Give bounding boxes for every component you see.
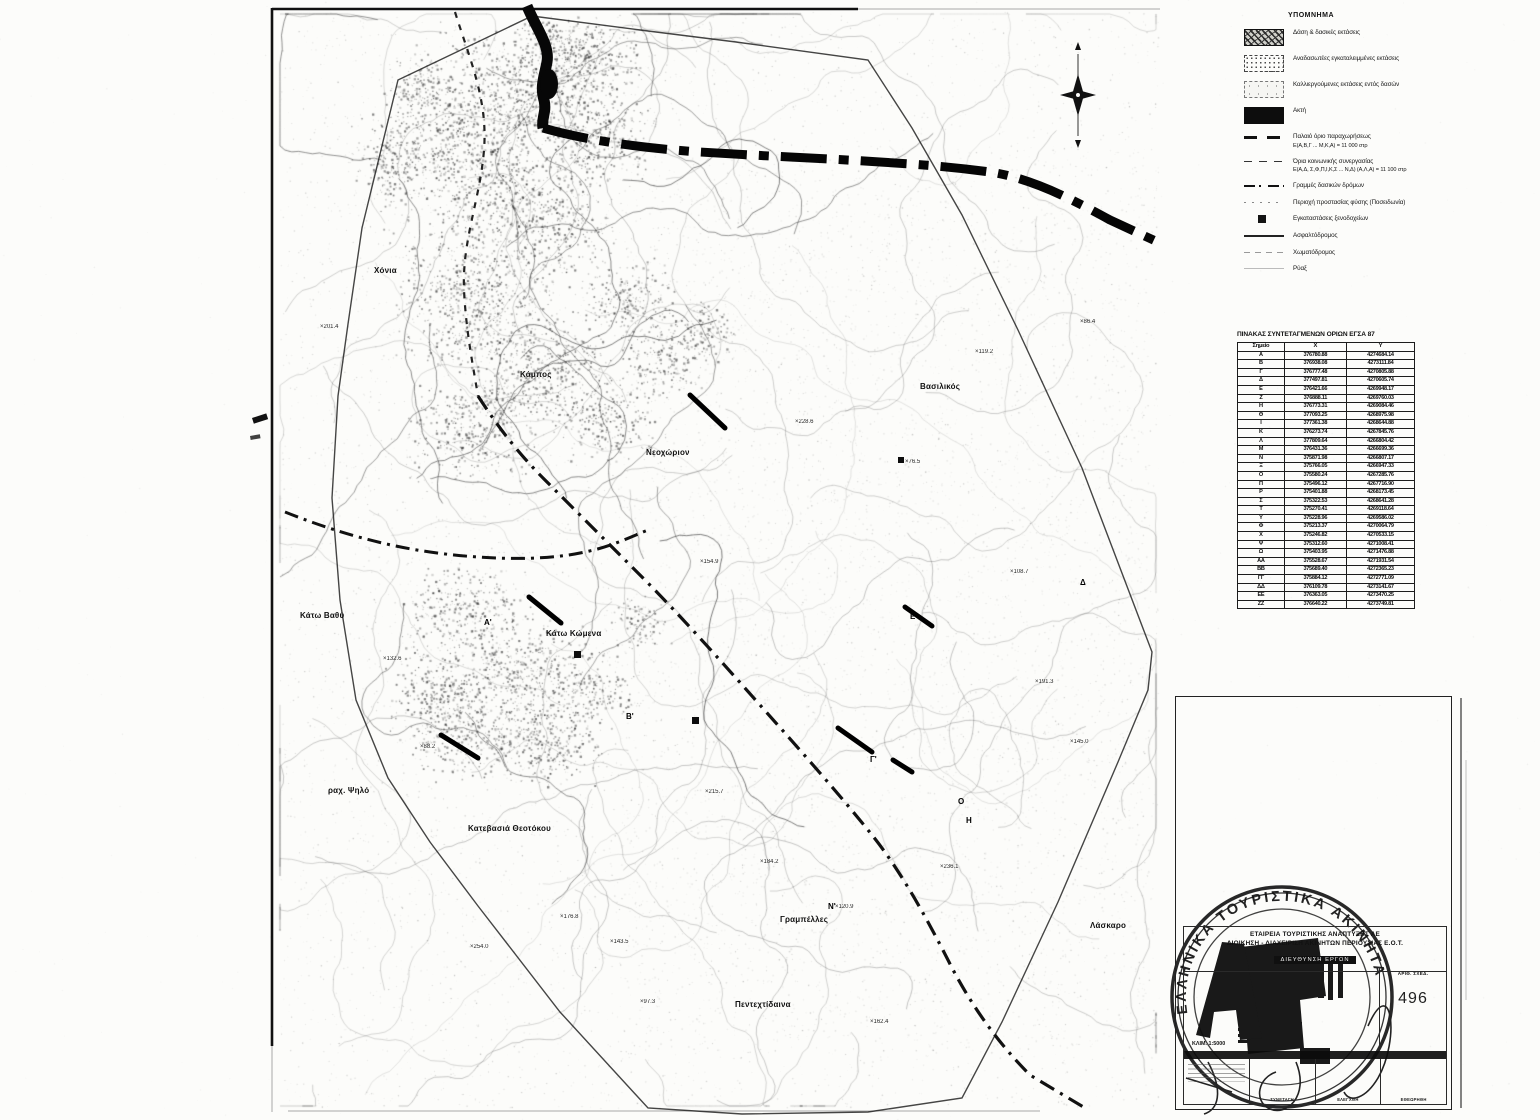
legend-item-sub: Ε(Α,Β,Γ ... Μ,Κ,Α) = 11 000 στρ bbox=[1293, 143, 1371, 149]
legend-item: Δάση & δασικές εκτάσεις bbox=[1244, 29, 1494, 46]
org-line-3: ΔΙΕΥΘΥΝΣΗ ΕΡΓΩΝ bbox=[1274, 956, 1355, 964]
signature-cell-label: ΕΛΕΓΧΘΗ bbox=[1316, 1097, 1381, 1102]
title-block-signature-cell: ΕΘΕΩΡΗΘΗ bbox=[1381, 1059, 1446, 1104]
legend-item: Εγκαταστάσεις ξενοδοχείων bbox=[1244, 215, 1494, 223]
legend-sample-swatch-cultivated bbox=[1244, 81, 1284, 98]
legend-item: Όρια κοινωνικής συνεργασίαςΕ(Α,Δ, Σ,Φ,Π,… bbox=[1244, 158, 1494, 174]
legend-sample-line-stream bbox=[1244, 265, 1284, 269]
legend-sample-swatch-reforest bbox=[1244, 55, 1284, 72]
vertex-letter: Δ bbox=[1080, 578, 1086, 587]
legend-item: Καλλιεργούμενες εκτάσεις εντός δασών bbox=[1244, 81, 1494, 98]
map-label: Βασιλικός bbox=[920, 382, 960, 391]
title-block-middle: ΚΛΙΜ. 1:5000 ΑΡΙΘ. ΣΧΕΔ. 496 bbox=[1184, 967, 1446, 1051]
vertex-letter: Ε' bbox=[910, 612, 917, 621]
legend-item-label: Δάση & δασικές εκτάσεις bbox=[1293, 29, 1360, 37]
table-row: ΓΓ375884.124272771.09 bbox=[1238, 575, 1415, 584]
swatch-coast-icon bbox=[1244, 107, 1284, 124]
legend-item-label: Καλλιεργούμενες εκτάσεις εντός δασών bbox=[1293, 81, 1399, 89]
line-forest-road-icon bbox=[1244, 185, 1284, 187]
legend-sample-swatch-coast bbox=[1244, 107, 1284, 124]
drawing-number-label: ΑΡΙΘ. ΣΧΕΔ. bbox=[1380, 971, 1446, 976]
elevation-mark: ×154.9 bbox=[700, 559, 719, 565]
table-row: Ψ375312.604271008.41 bbox=[1238, 540, 1415, 549]
legend-sample-swatch-forest bbox=[1244, 29, 1284, 46]
table-row: ΒΒ375689.404272365.23 bbox=[1238, 566, 1415, 575]
line-protection-icon bbox=[1244, 202, 1284, 203]
line-stream-icon bbox=[1244, 268, 1284, 269]
elevation-mark: ×97.3 bbox=[640, 999, 655, 1005]
elevation-mark: ×184.2 bbox=[760, 859, 779, 865]
elevation-mark: ×254.0 bbox=[470, 944, 489, 950]
marker-hotel-icon bbox=[1258, 215, 1266, 223]
drawing-number-box: ΑΡΙΘ. ΣΧΕΔ. 496 bbox=[1379, 967, 1446, 1051]
scale-text: ΚΛΙΜ. 1:5000 bbox=[1192, 1041, 1225, 1047]
map-label: Κάτω Κώμενα bbox=[546, 629, 601, 638]
table-row: Μ376431.364266699.36 bbox=[1238, 446, 1415, 455]
legend-item: Γραμμές δασικών δρόμων bbox=[1244, 182, 1494, 190]
legend-sample-line-common-boundary bbox=[1244, 158, 1284, 162]
elevation-mark: ×108.7 bbox=[1010, 569, 1029, 575]
map-label: Γραμπέλλες bbox=[780, 915, 828, 924]
legend-item-label: Περιοχή προστασίας φύσης (Ποσειδωνία) bbox=[1293, 199, 1405, 207]
table-row: Α376780.884274684.14 bbox=[1238, 351, 1415, 360]
legend-panel: ΥΠΟΜΝΗΜΑ Δάση & δασικές εκτάσειςΑναδασωτ… bbox=[1244, 12, 1494, 282]
legend-item-sub: Ε(Α,Δ, Σ,Φ,Π,Ι,Κ,Σ ... Ν,Δ) (Α,Λ,Α) = 11… bbox=[1293, 167, 1406, 173]
title-block-notes-cell bbox=[1184, 1059, 1250, 1104]
legend-item-label: Αναδασωτέες εγκαταλειμμένες εκτάσεις bbox=[1293, 55, 1399, 63]
table-row: Λ377809.644266804.42 bbox=[1238, 437, 1415, 446]
elevation-mark: ×176.8 bbox=[560, 914, 579, 920]
legend-sample-line-forest-road bbox=[1244, 182, 1284, 187]
elevation-mark: ×76.5 bbox=[905, 459, 920, 465]
legend-items: Δάση & δασικές εκτάσειςΑναδασωτέες εγκατ… bbox=[1244, 29, 1494, 273]
table-row: Γ376777.484270805.88 bbox=[1238, 368, 1415, 377]
table-row: Π375496.124267716.90 bbox=[1238, 480, 1415, 489]
table-row: Η376773.314269084.46 bbox=[1238, 403, 1415, 412]
map-annotations: Κάτω ΒαθύΒασιλικόςΝεοχώριονΚατεβασιά Θεο… bbox=[0, 0, 1165, 1120]
legend-item-label: Ρύαξ bbox=[1293, 265, 1307, 273]
vertex-letter: Ο bbox=[958, 797, 964, 806]
legend-item: Ασφαλτόδρομος bbox=[1244, 232, 1494, 240]
map-label: Κάτω Βαθύ bbox=[300, 611, 344, 620]
table-row: Ι377361.384268644.88 bbox=[1238, 420, 1415, 429]
table-row: ΖΖ376640.224273749.81 bbox=[1238, 600, 1415, 609]
swatch-forest-icon bbox=[1244, 29, 1284, 46]
legend-sample-line-asphalt bbox=[1244, 232, 1284, 237]
map-label: Πεντεχτίδαινα bbox=[735, 1000, 791, 1009]
illegible-notes bbox=[1188, 1064, 1245, 1082]
table-row: Ε376421.664269948.17 bbox=[1238, 385, 1415, 394]
table-row: Β376938.084273111.84 bbox=[1238, 360, 1415, 369]
legend-item-label: Ασφαλτόδρομος bbox=[1293, 232, 1337, 240]
elevation-mark: ×201.4 bbox=[320, 324, 339, 330]
legend-item: Περιοχή προστασίας φύσης (Ποσειδωνία) bbox=[1244, 199, 1494, 207]
table-row: Κ376273.744267845.76 bbox=[1238, 428, 1415, 437]
legend-item: Ακτή bbox=[1244, 107, 1494, 124]
legend-sample-line-dirt bbox=[1244, 249, 1284, 253]
vertex-letter: Η bbox=[966, 816, 972, 825]
coords-col-header: Υ bbox=[1346, 343, 1414, 352]
elevation-mark: ×228.6 bbox=[795, 419, 814, 425]
vertex-letter: Α' bbox=[484, 618, 492, 627]
coordinates-table: ΣημείοΧΥ Α376780.884274684.14Β376938.084… bbox=[1237, 342, 1415, 609]
legend-sample-line-old-boundary bbox=[1244, 133, 1284, 139]
coords-col-header: Σημείο bbox=[1238, 343, 1285, 352]
elevation-mark: ×143.5 bbox=[610, 939, 629, 945]
legend-item: Παλαιό όριο παραχωρήσεωςΕ(Α,Β,Γ ... Μ,Κ,… bbox=[1244, 133, 1494, 149]
title-block-signature-cell: ΕΛΕΓΧΘΗ bbox=[1316, 1059, 1382, 1104]
coordinates-table-body: Α376780.884274684.14Β376938.084273111.84… bbox=[1238, 351, 1415, 609]
legend-item: Ρύαξ bbox=[1244, 265, 1494, 273]
table-row: Ρ375401.884268173.45 bbox=[1238, 489, 1415, 498]
table-row: ΑΑ375528.674271931.54 bbox=[1238, 557, 1415, 566]
elevation-mark: ×162.4 bbox=[870, 1019, 889, 1025]
swatch-reforest-icon bbox=[1244, 55, 1284, 72]
coordinates-table-title: ΠΙΝΑΚΑΣ ΣΥΝΤΕΤΑΓΜΕΝΩΝ ΟΡΙΩΝ ΕΓΣΑ 87 bbox=[1237, 331, 1415, 338]
title-block: ΕΤΑΙΡΕΙΑ ΤΟΥΡΙΣΤΙΚΗΣ ΑΝΑΠΤΥΞΗΣ ΑΕ ΔΙΟΙΚΗ… bbox=[1175, 696, 1452, 1110]
legend-item-label: Γραμμές δασικών δρόμων bbox=[1293, 182, 1364, 190]
line-asphalt-icon bbox=[1244, 235, 1284, 237]
legend-title: ΥΠΟΜΝΗΜΑ bbox=[1288, 12, 1494, 19]
legend-item-label: Παλαιό όριο παραχωρήσεως bbox=[1293, 133, 1371, 141]
vertex-letter: Ν' bbox=[828, 902, 836, 911]
legend-item: Αναδασωτέες εγκαταλειμμένες εκτάσεις bbox=[1244, 55, 1494, 72]
signature-cell-label: ΣΥΝΕΤΑΓΗ bbox=[1250, 1097, 1315, 1102]
drawing-number: 496 bbox=[1380, 990, 1446, 1008]
map-label: Κάμπος bbox=[520, 370, 552, 379]
table-row: Ζ376888.114269760.03 bbox=[1238, 394, 1415, 403]
table-row: ΔΔ376109.784273141.67 bbox=[1238, 583, 1415, 592]
scanned-map-page: ΕΛΛΗΝΙΚΑ ΤΟΥΡΙΣΤΙΚΑ ΑΚΙΝΗΤΑ bbox=[0, 0, 1540, 1120]
table-row: Ο375580.244267285.76 bbox=[1238, 471, 1415, 480]
table-row: Τ375270.414269118.64 bbox=[1238, 506, 1415, 515]
vertex-letter: Γ' bbox=[870, 755, 877, 764]
table-row: Σ375322.534268641.28 bbox=[1238, 497, 1415, 506]
swatch-cultivated-icon bbox=[1244, 81, 1284, 98]
table-row: Φ375213.374270064.79 bbox=[1238, 523, 1415, 532]
signature-cell-label: ΕΘΕΩΡΗΘΗ bbox=[1381, 1097, 1446, 1102]
map-label: Νεοχώριον bbox=[646, 448, 690, 457]
map-label: Λάσκαρο bbox=[1090, 921, 1126, 930]
legend-sample-line-protection bbox=[1244, 199, 1284, 203]
map-label: Χόνια bbox=[374, 266, 397, 275]
legend-item-label: Χωματόδρομος bbox=[1293, 249, 1335, 257]
legend-sample-marker-hotel bbox=[1244, 215, 1284, 223]
map-label: ραχ. Ψηλό bbox=[328, 786, 369, 795]
legend-item: Χωματόδρομος bbox=[1244, 249, 1494, 257]
table-row: Ν375871.984266807.17 bbox=[1238, 454, 1415, 463]
table-row: Χ375246.824270533.15 bbox=[1238, 532, 1415, 541]
legend-item-label: Εγκαταστάσεις ξενοδοχείων bbox=[1293, 215, 1368, 223]
line-dirt-icon bbox=[1244, 252, 1284, 253]
table-row: Υ375228.964269586.02 bbox=[1238, 514, 1415, 523]
title-block-heavy-band bbox=[1184, 1051, 1446, 1059]
table-row: ΕΕ376363.054273470.25 bbox=[1238, 592, 1415, 601]
line-old-boundary-icon bbox=[1244, 136, 1284, 139]
elevation-mark: ×145.0 bbox=[1070, 739, 1089, 745]
coords-col-header: Χ bbox=[1284, 343, 1346, 352]
elevation-mark: ×119.2 bbox=[975, 349, 993, 355]
elevation-mark: ×88.2 bbox=[420, 744, 435, 750]
title-block-signature-cell: ΣΥΝΕΤΑΓΗ bbox=[1250, 1059, 1316, 1104]
title-block-inner: ΕΤΑΙΡΕΙΑ ΤΟΥΡΙΣΤΙΚΗΣ ΑΝΑΠΤΥΞΗΣ ΑΕ ΔΙΟΙΚΗ… bbox=[1183, 926, 1447, 1105]
coordinates-table-header: ΣημείοΧΥ bbox=[1238, 343, 1415, 352]
legend-item-label: Ακτή bbox=[1293, 107, 1306, 115]
map-label: Κατεβασιά Θεοτόκου bbox=[468, 824, 551, 833]
title-block-org: ΕΤΑΙΡΕΙΑ ΤΟΥΡΙΣΤΙΚΗΣ ΑΝΑΠΤΥΞΗΣ ΑΕ ΔΙΟΙΚΗ… bbox=[1184, 927, 1446, 972]
table-row: Ξ375766.054266947.33 bbox=[1238, 463, 1415, 472]
elevation-mark: ×191.3 bbox=[1035, 679, 1054, 685]
table-row: Δ377497.814270605.74 bbox=[1238, 377, 1415, 386]
elevation-mark: ×132.6 bbox=[383, 656, 402, 662]
org-line-2: ΔΙΟΙΚΗΣΗ - ΔΙΑΧΕΙΡΙΣΗ ΑΚΙΝΗΤΩΝ ΠΕΡΙΟΥΣΙΑ… bbox=[1184, 940, 1446, 949]
elevation-mark: ×215.7 bbox=[705, 789, 724, 795]
coordinates-table-panel: ΠΙΝΑΚΑΣ ΣΥΝΤΕΤΑΓΜΕΝΩΝ ΟΡΙΩΝ ΕΓΣΑ 87 Σημε… bbox=[1237, 331, 1415, 609]
vertex-letter: Β' bbox=[626, 712, 634, 721]
table-row: Θ377093.254268975.98 bbox=[1238, 411, 1415, 420]
org-line-1: ΕΤΑΙΡΕΙΑ ΤΟΥΡΙΣΤΙΚΗΣ ΑΝΑΠΤΥΞΗΣ ΑΕ bbox=[1184, 931, 1446, 940]
line-common-boundary-icon bbox=[1244, 161, 1284, 162]
elevation-mark: ×120.9 bbox=[835, 904, 854, 910]
legend-item-label: Όρια κοινωνικής συνεργασίας bbox=[1293, 158, 1406, 166]
title-block-bottom-row: ΣΥΝΕΤΑΓΗΕΛΕΓΧΘΗΕΘΕΩΡΗΘΗ bbox=[1184, 1059, 1446, 1104]
elevation-mark: ×236.1 bbox=[940, 864, 959, 870]
elevation-mark: ×86.4 bbox=[1080, 319, 1095, 325]
table-row: Ω375403.954271476.88 bbox=[1238, 549, 1415, 558]
